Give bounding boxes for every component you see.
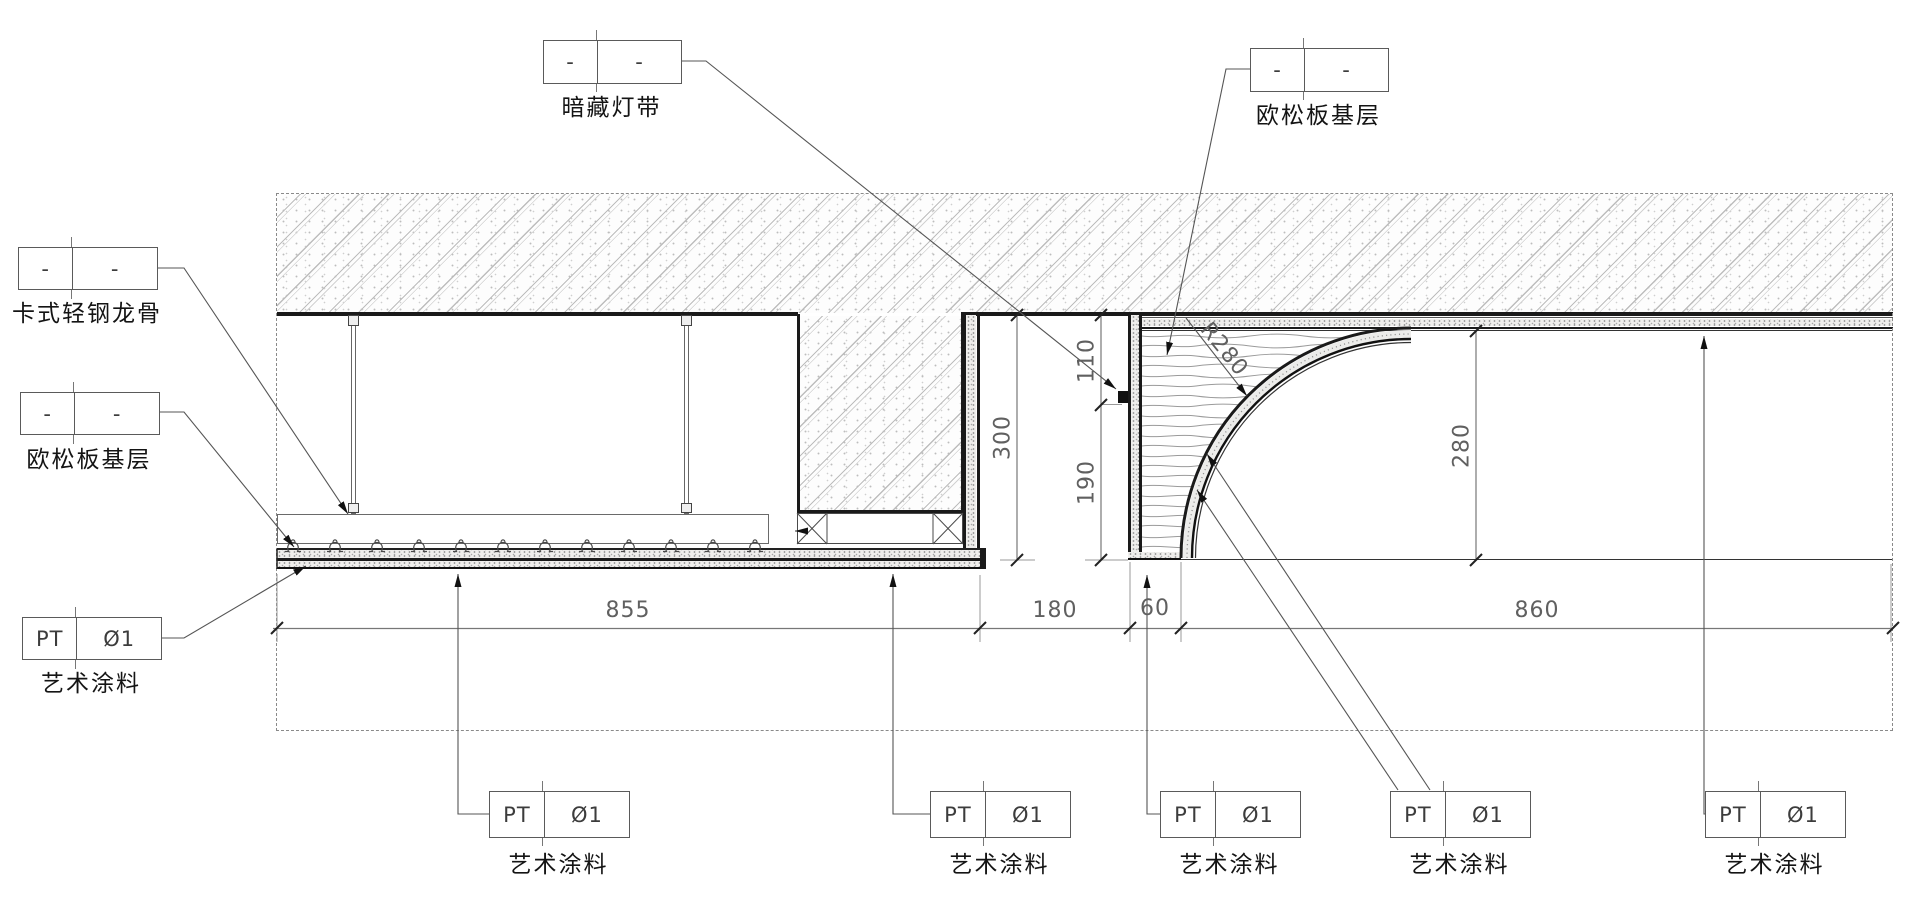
callout-box-paint-bottom-3: PT Ø1 bbox=[1160, 791, 1301, 838]
callout-cell: - bbox=[75, 393, 159, 434]
callout-label-osb-left: 欧松板基层 bbox=[10, 440, 168, 474]
callout-label-paint-bottom-1: 艺术涂料 bbox=[479, 845, 638, 879]
callout-box-paint-bottom-1: PT Ø1 bbox=[489, 791, 630, 838]
callout-cell: Ø1 bbox=[77, 618, 161, 659]
callout-label-keel: 卡式轻钢龙骨 bbox=[2, 294, 172, 328]
callout-cell: PT bbox=[1391, 792, 1446, 837]
callout-cell: PT bbox=[490, 792, 545, 837]
callout-cell: - bbox=[598, 41, 681, 83]
callout-label-paint-bottom-5: 艺术涂料 bbox=[1695, 845, 1854, 879]
furring-clips bbox=[285, 540, 763, 552]
callout-cell: - bbox=[1251, 49, 1305, 91]
callout-cell: - bbox=[21, 393, 75, 434]
callout-cell: Ø1 bbox=[986, 792, 1070, 837]
callout-cell: PT bbox=[931, 792, 986, 837]
callout-box-osb-top: - - bbox=[1250, 48, 1389, 92]
callout-cell: PT bbox=[1161, 792, 1216, 837]
callout-box-keel: - - bbox=[18, 247, 158, 290]
callout-box-paint-bottom-5: PT Ø1 bbox=[1705, 791, 1846, 838]
callout-cell: Ø1 bbox=[1761, 792, 1845, 837]
callout-box-paint-bottom-2: PT Ø1 bbox=[930, 791, 1071, 838]
callout-label-paint-bottom-4: 艺术涂料 bbox=[1380, 845, 1539, 879]
callout-cell: PT bbox=[1706, 792, 1761, 837]
callout-label-paint-left: 艺术涂料 bbox=[15, 664, 167, 698]
callout-cell: Ø1 bbox=[545, 792, 629, 837]
x-blocking bbox=[797, 513, 963, 544]
callout-cell: Ø1 bbox=[1446, 792, 1530, 837]
callout-cell: - bbox=[544, 41, 598, 83]
dim-190: 190 bbox=[1075, 453, 1100, 513]
callout-box-paint-bottom-4: PT Ø1 bbox=[1390, 791, 1531, 838]
callout-cell: PT bbox=[23, 618, 77, 659]
dim-60: 60 bbox=[1120, 596, 1190, 621]
callout-box-osb-left: - - bbox=[20, 392, 160, 435]
dim-300: 300 bbox=[991, 408, 1016, 468]
callout-label-osb-top: 欧松板基层 bbox=[1240, 96, 1397, 130]
dim-280: 280 bbox=[1450, 416, 1475, 476]
callout-cell: - bbox=[73, 248, 157, 289]
dim-110: 110 bbox=[1075, 331, 1100, 391]
cove-arc bbox=[1181, 328, 1411, 558]
dim-180: 180 bbox=[1005, 598, 1105, 623]
dim-855: 855 bbox=[578, 598, 678, 623]
dim-860: 860 bbox=[1487, 598, 1587, 623]
callout-cell: Ø1 bbox=[1216, 792, 1300, 837]
callout-label-paint-bottom-3: 艺术涂料 bbox=[1150, 845, 1309, 879]
callout-cell: - bbox=[1305, 49, 1388, 91]
linework-overlay bbox=[0, 0, 1920, 912]
callout-label-hidden-light: 暗藏灯带 bbox=[543, 88, 680, 122]
callout-box-paint-left: PT Ø1 bbox=[22, 617, 162, 660]
callout-label-paint-bottom-2: 艺术涂料 bbox=[920, 845, 1079, 879]
callout-cell: - bbox=[19, 248, 73, 289]
ceiling-detail-drawing: 855 180 60 860 300 110 190 280 R280 - - … bbox=[0, 0, 1920, 912]
callout-box-hidden-light: - - bbox=[543, 40, 682, 84]
